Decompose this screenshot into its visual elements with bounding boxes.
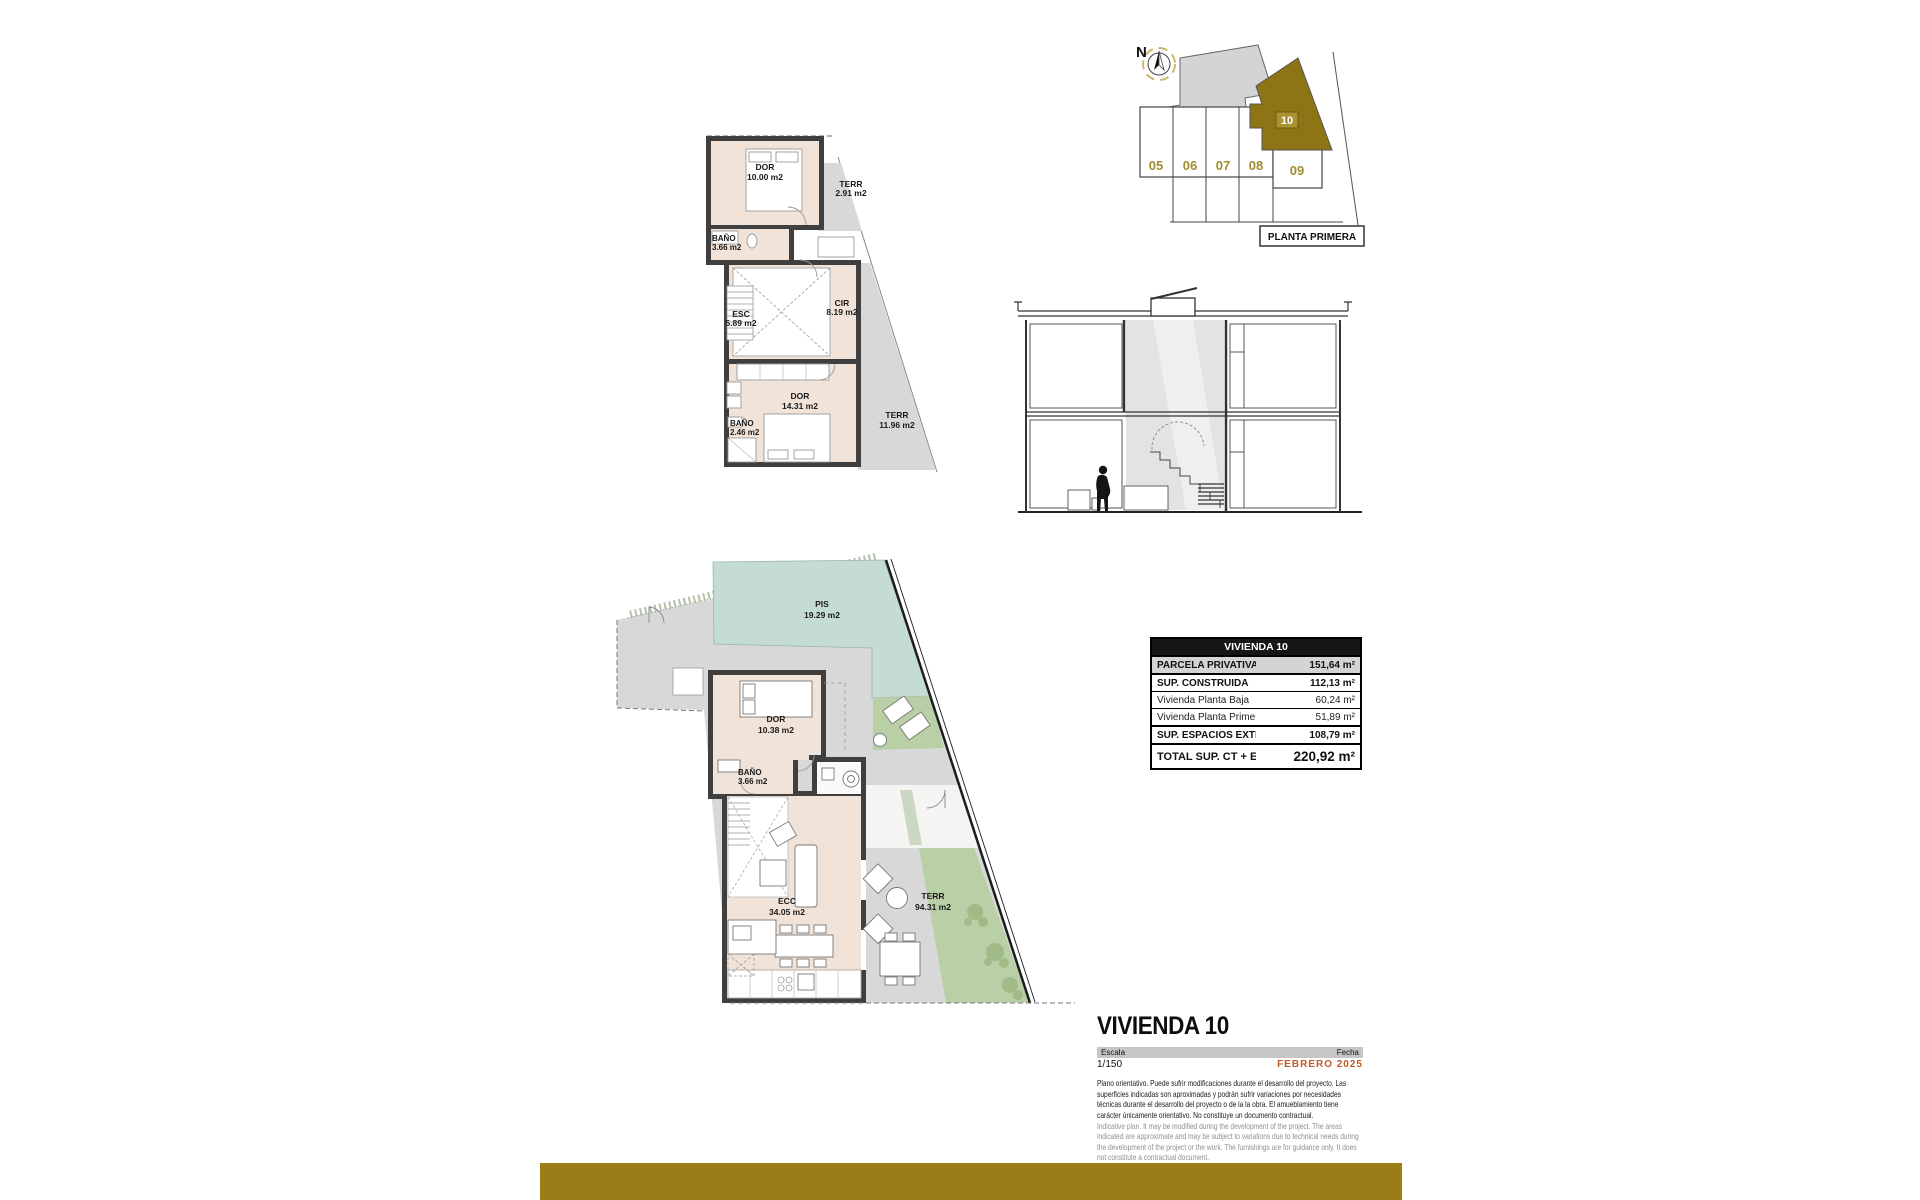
room-label: TERR [885,410,908,420]
floor-caption: PLANTA PRIMERA [1260,226,1364,246]
row-value: 51,89 m² [1256,709,1361,727]
row-value: 108,79 m² [1256,726,1361,744]
room-area: 2.46 m2 [730,428,760,437]
room-area: 34.05 m2 [769,907,805,917]
scale-value: 1/150 [1097,1059,1122,1070]
brand-bar [540,1163,1402,1200]
room-area: 14.31 m2 [782,401,818,411]
north-label: N [1136,44,1147,61]
room-area: 5.89 m2 [725,318,756,328]
row-value: 60,24 m² [1256,692,1361,709]
room-area: 8.19 m2 [826,307,857,317]
floor-caption-label: PLANTA PRIMERA [1268,232,1356,243]
room-area: 19.29 m2 [804,610,840,620]
row-label: SUP. CONSTRUIDA [1151,674,1256,692]
area-table-title: VIVIENDA 10 [1151,638,1361,656]
upper-floor-plan: DOR 10.00 m2 TERR 2.91 m2 BAÑO 3.66 m2 E… [690,125,950,490]
table-row: SUP. ESPACIOS EXTERIORES 108,79 m² [1151,726,1361,744]
table-row: PARCELA PRIVATIVA 151,64 m² [1151,656,1361,674]
table-row: Vivienda Planta Baja 60,24 m² [1151,692,1361,709]
unit-number: 06 [1183,158,1197,173]
disclaimer-spanish: Plano orientativo. Puede sufrir modifica… [1097,1078,1362,1121]
room-area: 10.00 m2 [747,172,783,182]
room-label: DOR [767,714,786,724]
sheet-title: VIVIENDA 10 [1097,1012,1336,1041]
plan-sheet: DOR 10.00 m2 TERR 2.91 m2 BAÑO 3.66 m2 E… [0,0,1920,1200]
unit-number: 05 [1149,158,1163,173]
scale-date-bar: Escala Fecha [1097,1047,1363,1058]
table-row-total: TOTAL SUP. CT + EXTERIOR 220,92 m² [1151,744,1361,769]
row-value: 220,92 m² [1256,744,1361,769]
room-label: DOR [791,391,810,401]
row-value: 112,13 m² [1256,674,1361,692]
room-label: PIS [815,599,829,609]
room-area: 11.96 m2 [879,420,915,430]
disclaimer: Plano orientativo. Puede sufrir modifica… [1097,1078,1362,1163]
ground-floor-plan: PIS 19.29 m2 DOR 10.38 m2 BAÑO 3.66 m2 E… [600,540,1090,1045]
room-label: BAÑO [730,419,754,428]
room-label: BAÑO [738,768,762,777]
site-key-plan: N 10 05 06 07 08 09 PLANTA PRIMERA [1128,32,1373,254]
room-label: ECC [778,896,796,906]
row-label: TOTAL SUP. CT + EXTERIOR [1151,744,1256,769]
unit-number: 08 [1249,158,1263,173]
row-label: Vivienda Planta Primera [1151,709,1256,727]
table-row: Vivienda Planta Primera 51,89 m² [1151,709,1361,727]
title-block: VIVIENDA 10 Escala Fecha 1/150 FEBRERO 2… [1097,1012,1363,1163]
room-area: 3.66 m2 [738,777,768,786]
room-area: 3.66 m2 [712,243,742,252]
disclaimer-english: Indicative plan. It may be modified duri… [1097,1121,1362,1164]
scale-label: Escala [1101,1048,1125,1057]
north-compass-icon: N [1136,44,1175,80]
room-label: TERR [921,891,944,901]
section-skylight [1151,288,1197,316]
unit-10-number: 10 [1281,115,1293,127]
row-label: PARCELA PRIVATIVA [1151,656,1256,674]
row-label: Vivienda Planta Baja [1151,692,1256,709]
row-value: 151,64 m² [1256,656,1361,674]
room-label: DOR [756,162,775,172]
unit-number: 09 [1290,163,1304,178]
building-section [1015,290,1375,518]
date-value: FEBRERO 2025 [1277,1059,1363,1070]
unit-number: 07 [1216,158,1230,173]
table-row: SUP. CONSTRUIDA 112,13 m² [1151,674,1361,692]
date-label: Fecha [1337,1048,1359,1057]
room-area: 94.31 m2 [915,902,951,912]
row-label: SUP. ESPACIOS EXTERIORES [1151,726,1256,744]
room-area: 10.38 m2 [758,725,794,735]
area-summary-table: VIVIENDA 10 PARCELA PRIVATIVA 151,64 m² … [1150,637,1362,770]
room-area: 2.91 m2 [835,188,866,198]
room-label: BAÑO [712,234,736,243]
